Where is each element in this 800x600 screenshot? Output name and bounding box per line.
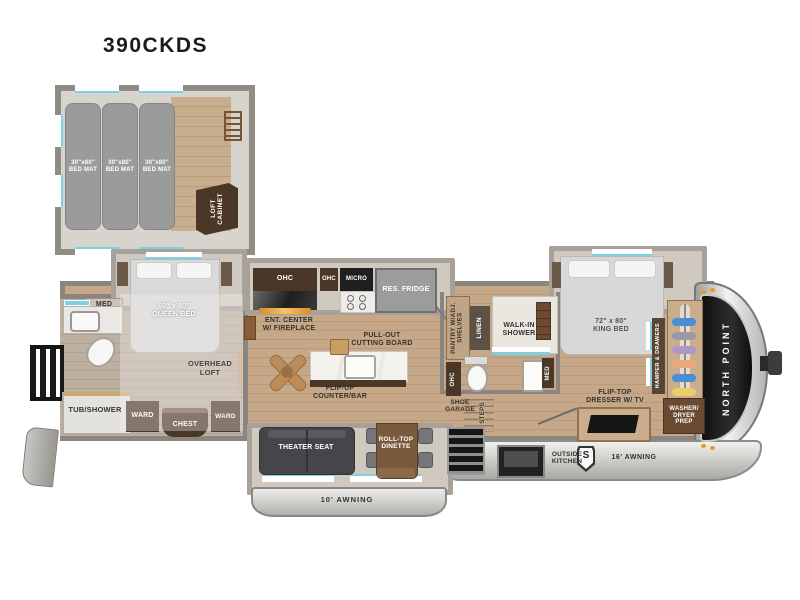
solar-badge-letter: S: [577, 450, 595, 462]
burner: [347, 295, 354, 302]
bath-ohc: OHC: [446, 362, 461, 396]
pillow: [568, 260, 610, 278]
hanger-icon: [672, 374, 696, 382]
hanger-icon: [672, 360, 696, 368]
loft-bed-mat: 30"x80" BED MAT: [139, 103, 175, 230]
nightstand: [664, 262, 673, 288]
pantry-label: PANTRY W/ADJ. SHELVES: [451, 302, 464, 354]
dinette-chair: [418, 428, 433, 444]
stove-counter: [340, 291, 376, 313]
loft-cabinet: LOFT CABINET: [196, 183, 238, 235]
pantry: PANTRY W/ADJ. SHELVES: [446, 296, 470, 360]
window: [146, 252, 202, 259]
residential-fridge: RES. FRIDGE: [375, 268, 437, 313]
hamper-drawers: HAMPER & DRAWERS: [652, 318, 665, 394]
steps-label-box: STEPS: [476, 396, 490, 430]
floorplan-canvas: 390CKDS 30"x80" BED MAT 30"x80" BED MAT …: [0, 0, 800, 600]
counter-bar-label: FLIP-UP COUNTER/BAR: [300, 385, 380, 401]
dinette-chair: [418, 452, 433, 468]
window: [55, 175, 63, 207]
marker-light: [710, 288, 715, 292]
bed-mat-label: 30"x80" BED MAT: [143, 160, 171, 174]
bath-wall: [440, 292, 444, 394]
window: [139, 85, 183, 93]
window: [262, 474, 334, 482]
med-label: MED: [545, 366, 552, 381]
ent-center-label: ENT. CENTER W/ FIREPLACE: [246, 317, 332, 333]
nightstand: [117, 262, 128, 286]
linen-label: LINEN: [476, 317, 483, 339]
pillow: [136, 262, 172, 279]
loft-bed-mat: 30"x80" BED MAT: [65, 103, 101, 230]
overhead-loft-label: OVERHEAD LOFT: [170, 360, 250, 377]
outside-kitchen-screen: [504, 451, 538, 467]
burner: [359, 295, 366, 302]
fireplace-glow: [259, 308, 311, 314]
entry-steps: [447, 427, 485, 475]
nightstand: [552, 262, 561, 288]
hanger-icon: [672, 332, 696, 340]
shower-label: WALK-IN SHOWER: [492, 322, 546, 338]
queen-bed-label: 60" x 80" QUEEN BED: [134, 303, 214, 319]
ohc-label: OHC: [450, 372, 457, 387]
hitch-coupler-icon: [768, 351, 782, 375]
dinette-bench: [377, 468, 415, 478]
hanger-icon: [672, 388, 696, 396]
flip-top-dresser: [577, 407, 651, 442]
pillow: [176, 262, 212, 279]
washer-dryer-prep: WASHER/ DRYER PREP: [663, 398, 705, 434]
hanger-icon: [672, 318, 696, 326]
hanger-icon: [672, 346, 696, 354]
burner: [347, 303, 354, 310]
pillow: [614, 260, 656, 278]
loft-cabinet-label: LOFT CABINET: [210, 193, 224, 225]
bed-mat-label: 30"x80" BED MAT: [106, 160, 134, 174]
tv-icon: [587, 415, 639, 433]
nightstand: [221, 262, 232, 286]
window: [55, 115, 63, 147]
micro-label: MICRO: [346, 276, 367, 283]
fan-hub: [281, 366, 293, 378]
bed-mat-label: 30"x80" BED MAT: [69, 160, 97, 174]
med-label: MED: [85, 301, 123, 309]
brand-label: NORTH POINT: [722, 321, 732, 416]
overhead-cabinet-small: OHC: [320, 268, 338, 291]
shower-glass: [492, 347, 550, 355]
bath-sink: [522, 360, 544, 392]
loft-ladder-icon: [224, 111, 242, 141]
rear-cap-trim: [21, 426, 59, 487]
outside-kitchen-unit: [497, 445, 545, 478]
window: [75, 85, 119, 93]
bath-med-cabinet: MED: [542, 358, 554, 388]
awning-right-label: 16' AWNING: [602, 454, 666, 462]
dresser-label: FLIP-TOP DRESSER W/ TV: [570, 389, 660, 405]
tub-shower-label: TUB/SHOWER: [60, 406, 130, 415]
king-bed-label: 72" x 80" KING BED: [572, 318, 650, 334]
fridge-label: RES. FRIDGE: [383, 286, 430, 294]
loft-bed-mat: 30"x80" BED MAT: [102, 103, 138, 230]
toilet: [466, 364, 488, 392]
burner: [359, 303, 366, 310]
ohc-label: OHC: [277, 275, 293, 283]
loft-floorplan: 30"x80" BED MAT 30"x80" BED MAT 30"x80" …: [55, 85, 255, 255]
page-title: 390CKDS: [103, 34, 223, 58]
window: [592, 249, 652, 256]
theater-seat-label: THEATER SEAT: [261, 444, 351, 452]
island-sink: [344, 355, 376, 379]
awning-left-label: 10' AWNING: [251, 496, 443, 505]
rear-ladder-icon: [30, 345, 64, 401]
ohc-label: OHC: [322, 276, 336, 283]
marker-light: [701, 444, 706, 448]
overhead-cabinet-long: OHC: [253, 268, 317, 291]
steps-label: STEPS: [480, 402, 487, 424]
bath-sink: [70, 311, 100, 332]
dinette-label: ROLL-TOP DINETTE: [374, 436, 418, 451]
marker-light: [710, 446, 715, 450]
marker-light: [701, 290, 706, 294]
washer-label: WASHER/ DRYER PREP: [669, 406, 698, 427]
linen-cabinet: LINEN: [470, 306, 490, 350]
hamper-label: HAMPER & DRAWERS: [655, 323, 661, 388]
cutting-board-label: PULL-OUT CUTTING BOARD: [342, 332, 422, 348]
